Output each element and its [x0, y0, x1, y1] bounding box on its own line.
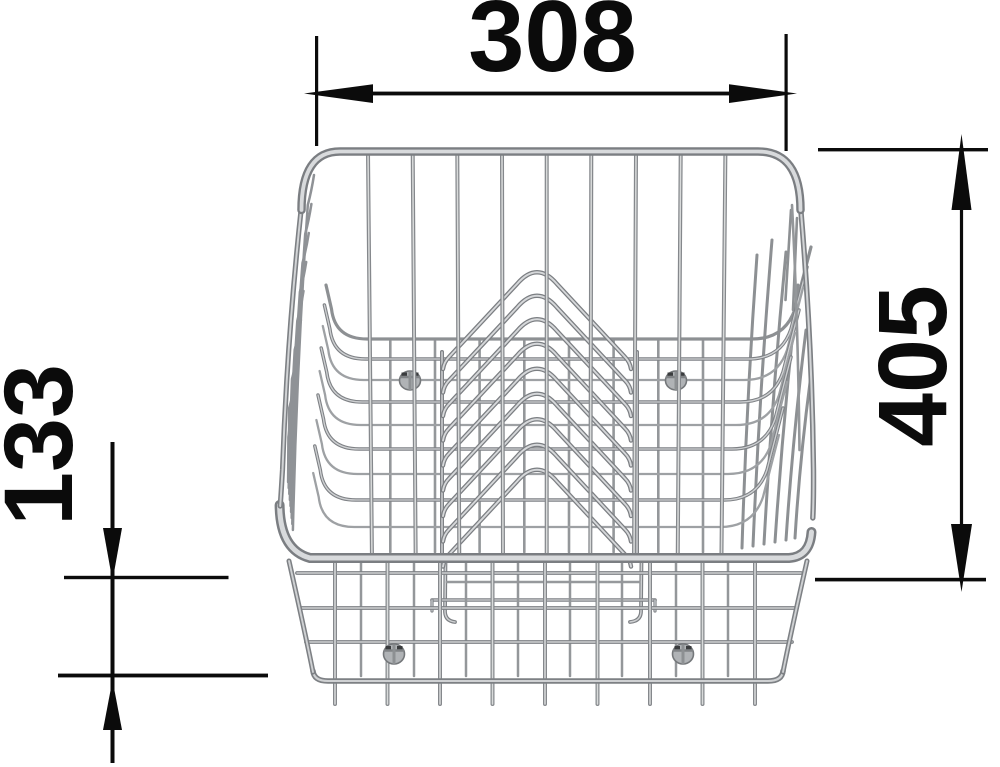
- svg-text:308: 308: [468, 0, 637, 93]
- svg-text:405: 405: [858, 285, 967, 447]
- svg-text:133: 133: [0, 364, 93, 526]
